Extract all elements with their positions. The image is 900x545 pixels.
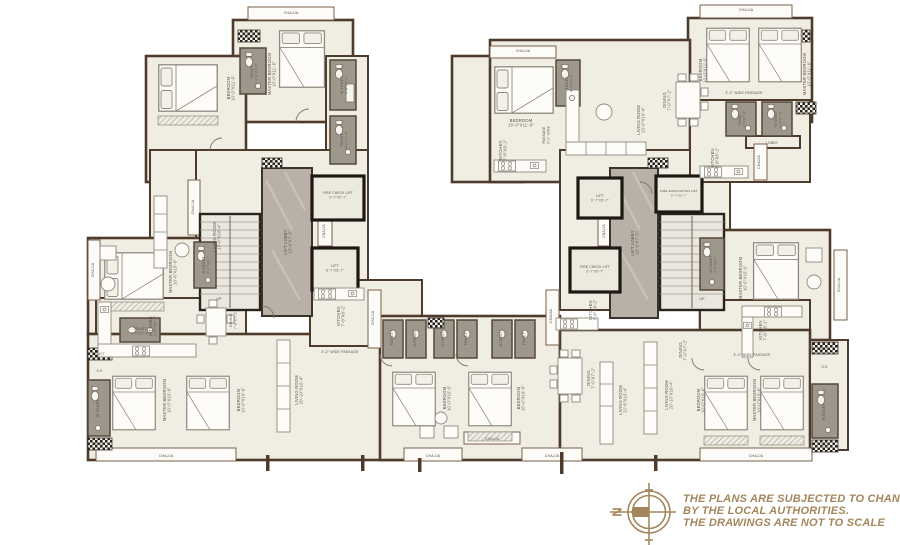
wc-icon [91,386,98,400]
room-label: M.TOILET [499,331,503,347]
room-label: LOBBY [766,141,779,145]
north-compass: N [610,483,676,545]
room-label: UP [699,297,705,301]
room-label: CHAJJA [191,199,195,214]
coffee-table-icon [596,104,612,120]
room-label: LIVING ROOM13'-0"X10'-4" [212,222,222,252]
room-label: DUCT [801,106,811,110]
sofa-icon [600,362,613,444]
sink-icon [734,168,742,174]
room-label: BEDROOM10'-0"X10'-6" [696,387,706,413]
room-label: CHAJJA [485,437,500,441]
bed-icon [707,28,750,82]
wc-icon [335,120,342,134]
bed-icon [393,372,436,426]
room-label: TOILET [390,333,394,346]
floor-plan: CHAJJADUCTTOILET4'-0"X7'-6"MASTER BEDROO… [0,0,900,545]
north-label: N [610,507,625,516]
room-label: DUCT [820,347,830,351]
armchair-icon [420,426,434,438]
room-label: BEDROOM10'-0"X10'-0" [442,385,452,411]
room-label: KITCHEN7'-8"X8'-2" [498,139,508,160]
armchair-icon [444,426,458,438]
room-label: 3'-2" WIDE PASSAGE [321,350,359,354]
room-label: TOILET [464,333,468,346]
sink-icon [743,322,751,328]
room-label: LIVING ROOM12'-6"X10'-4" [618,385,628,415]
room-label: CHAJJA [757,155,761,169]
wc-icon [703,242,710,256]
disclaimer-text: THE PLANS ARE SUBJECTED TO CHANGE BY THE… [683,493,900,529]
dining-table-icon [206,308,226,336]
room-label: LIVING ROOM20'-10"X10'-4" [664,380,674,410]
room-label: CHAJJA [371,310,375,325]
stove-icon [561,319,578,329]
room-label: LIVING ROOM13'-0"X10'-4" [636,105,646,135]
room-label: KITCHEN7'-8"X8'-2" [336,305,346,326]
coffee-table-icon [175,243,189,257]
room-label: UP [216,297,222,301]
room-label: DUCT [95,442,105,446]
bed-icon [761,376,804,430]
room-label: KITCHEN7'-8"X8'-1" [758,319,768,340]
room-label: DUCT [267,160,277,164]
room-label: KITCHEN7'-8"X8'-2" [710,147,720,168]
room-label: DUCT [820,443,830,447]
stove-icon [133,346,150,356]
armchair-icon [806,248,822,262]
room-label: CHAJJA [749,454,764,458]
room-label: M.TOILET4'-0"X7'-6" [774,111,783,127]
room-label: DUCT [95,352,105,356]
sink-icon [530,162,538,168]
room-label: CHAJJA [159,454,174,458]
stove-icon [499,161,516,171]
room-label: 3'-2" WIDE PASSAGE [733,353,771,357]
wc-icon [245,52,252,66]
room-label: M.TOILET [822,404,826,421]
bed-icon [159,65,217,111]
stove-icon [765,307,782,317]
room-label: M.TOILET7'-0"X4'-0" [202,256,211,274]
room-label: CHAJJA [426,454,441,458]
armchair-icon [100,246,116,260]
room-label: CHAJJA [739,8,754,12]
bed-icon [495,67,553,113]
room-label: DINING7'-0"X7'-2" [678,339,688,360]
room-label: BEDROOM10'-0"X10'-6" [236,387,246,413]
bed-icon [280,31,325,87]
bed-icon [187,376,230,430]
room-label: CHAJJA [602,224,606,238]
room-label: M.TOILET [413,331,417,347]
room-label: LIFT LOBBY13'-6"X7'-0" [630,230,640,255]
room-label: CHAJJA [516,49,531,53]
room-label: BEDROOM10'-0"X11'-0" [508,118,534,128]
room-label: M.TOILET [96,399,100,417]
room-label: S.S. [96,369,103,373]
sink-icon [100,306,108,312]
dining-table-icon [558,358,582,394]
room-label: BEDROOM10'-0"X11'-0" [226,75,236,101]
floor-plan-sheet: CHAJJADUCTTOILET4'-0"X7'-6"MASTER BEDROO… [0,0,900,545]
room-label: LIFT LOBBY13'-6"X7'-0" [283,229,293,254]
room-label: CHAJJA [837,277,841,292]
room-label: DINING7'-0"X7'-2" [586,367,596,388]
room-label: BEDROOM10'-0"X11'-0" [698,57,708,83]
room-label: M.TOILET4'-0"X7'-6" [340,75,349,94]
room-label: DUCT [244,33,254,37]
room-label: M.TOILET7'-0"X4'-0" [709,255,718,273]
sink-icon [348,290,356,296]
room-label: PASSAGE3'-2" WIDE [542,125,551,144]
stove-icon [319,289,336,299]
table-icon [807,275,821,289]
room-label: CHAJJA [322,224,326,238]
room-label: CHAJJA [91,262,95,277]
bed-icon [113,376,156,430]
dining-table-icon [676,82,700,118]
bed-icon [705,376,748,430]
room-label: CHAJJA [284,11,299,15]
room-label: TOILET [522,333,526,346]
room-label: DINING7'-0"X7'-2" [662,89,672,110]
table-icon [101,277,115,291]
table-icon [435,412,447,424]
room-label: CHAJJA [545,454,560,458]
room-label: BEDROOM10'-0"X10'-0" [516,385,526,411]
room-label: S.S. [821,365,828,369]
room-label: KITCHEN7'-8"X8'-1" [148,315,158,336]
room-label: LIVING ROOM20'-10"X10'-4" [294,375,304,405]
bed-icon [754,243,799,299]
wc-icon [817,390,824,404]
bed-icon [759,28,802,82]
room-label: KITCHEN7'-8"X8'-2" [588,299,598,320]
bed-icon [469,372,512,426]
room-label: 3'-2" WIDE PASSAGE [725,91,763,95]
room-label: M.TOILET [441,331,445,347]
room-label: CHAJJA [549,309,553,323]
